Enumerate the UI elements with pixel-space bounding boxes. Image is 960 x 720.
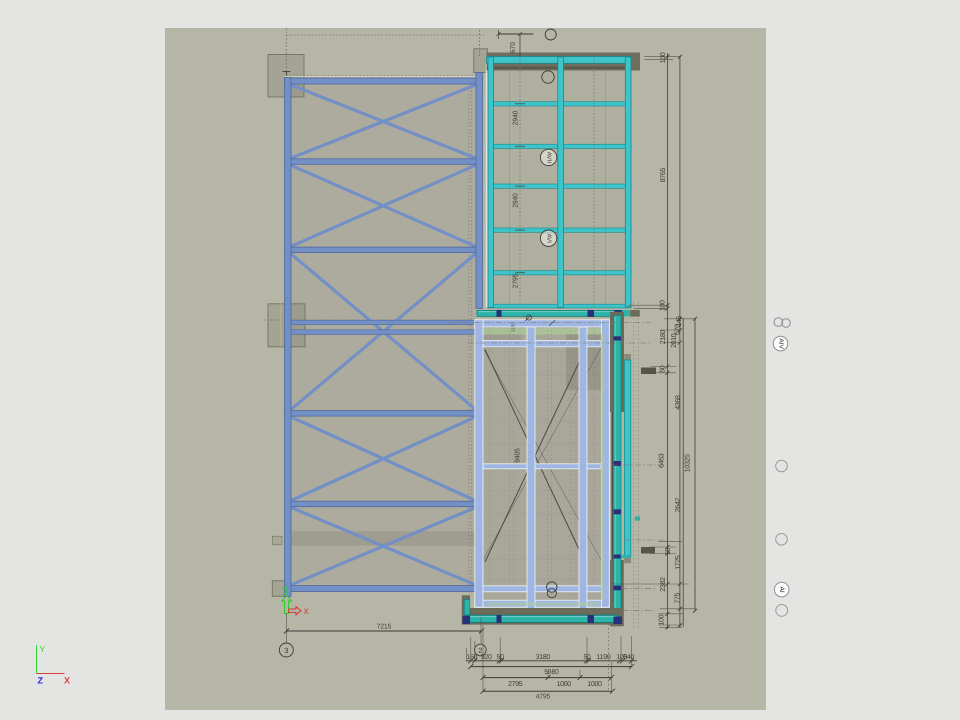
svg-text:100: 100 [660,52,667,63]
svg-text:AIV: AIV [778,338,785,349]
svg-text:AVI: AVI [546,233,552,243]
svg-text:2795: 2795 [513,274,520,289]
svg-text:100: 100 [659,300,666,311]
svg-text:920: 920 [481,654,492,661]
svg-text:50: 50 [497,654,504,661]
svg-text:6463: 6463 [659,453,666,468]
svg-text:145: 145 [676,316,683,327]
svg-text:7215: 7215 [377,624,392,631]
svg-text:670: 670 [510,42,517,53]
svg-text:50: 50 [665,548,672,555]
svg-text:Y: Y [40,644,46,654]
svg-text:2180: 2180 [660,330,667,345]
svg-text:AI: AI [778,587,785,593]
svg-text:AVII: AVII [546,152,552,164]
svg-text:2382: 2382 [660,577,667,592]
svg-text:50: 50 [659,365,666,372]
svg-text:3180: 3180 [536,654,551,661]
svg-text:100: 100 [659,614,666,625]
svg-text:540: 540 [623,654,634,661]
svg-text:10325: 10325 [684,454,691,472]
svg-text:X: X [304,607,310,616]
svg-text:4795: 4795 [536,693,551,700]
svg-text:775: 775 [675,593,682,604]
svg-text:Z: Z [38,676,44,686]
svg-text:1150: 1150 [511,322,516,332]
svg-text:1000: 1000 [587,681,602,688]
svg-text:1190: 1190 [596,654,611,661]
svg-text:2642: 2642 [675,498,682,513]
svg-text:2940: 2940 [513,193,520,208]
svg-text:4368: 4368 [675,395,682,410]
svg-text:3: 3 [284,646,288,655]
svg-text:X: X [64,676,70,686]
svg-text:2940: 2940 [513,111,520,126]
svg-text:2795: 2795 [508,681,523,688]
svg-text:8765: 8765 [660,168,667,183]
svg-text:5980: 5980 [544,669,559,676]
svg-text:50: 50 [583,654,590,661]
svg-text:1000: 1000 [557,681,572,688]
svg-text:9405: 9405 [514,448,521,463]
svg-text:150: 150 [466,654,477,661]
svg-text:1725: 1725 [675,555,682,570]
